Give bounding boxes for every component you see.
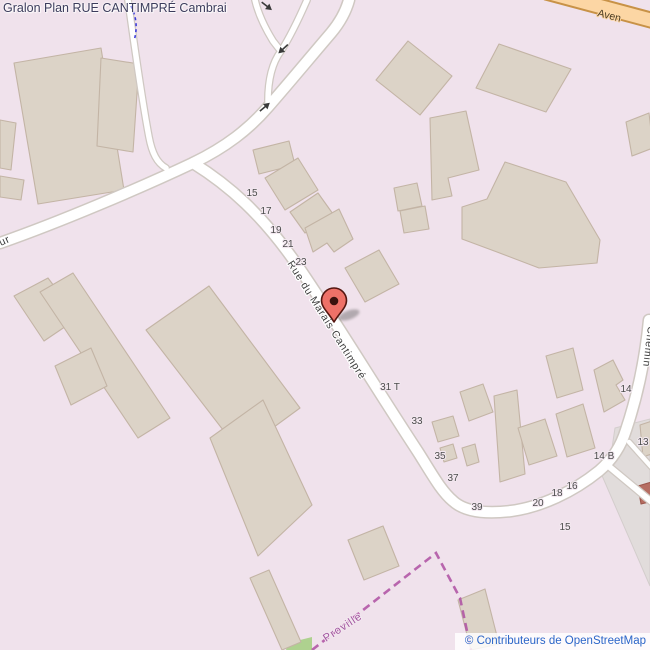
attribution-bar: © Contributeurs de OpenStreetMap xyxy=(455,633,650,650)
house-number: 17 xyxy=(260,206,272,217)
house-number: 13 xyxy=(637,437,649,448)
attribution-link[interactable]: © Contributeurs de OpenStreetMap xyxy=(465,635,646,647)
house-number: 20 xyxy=(532,498,544,509)
house-number: 15 xyxy=(559,522,571,533)
building xyxy=(394,183,422,211)
house-number: 15 xyxy=(246,188,258,199)
map-title: Gralon Plan RUE CANTIMPRÉ Cambrai xyxy=(3,1,227,15)
house-number: 33 xyxy=(411,416,423,427)
house-number: 16 xyxy=(566,481,578,492)
building xyxy=(97,58,139,152)
marker-pin-hole xyxy=(330,297,339,306)
house-number: 14 B xyxy=(594,451,615,462)
map-canvas[interactable]: Rue du Marais Cantimpré Chemin Aven ur P… xyxy=(0,0,650,650)
building xyxy=(400,206,429,233)
map-viewport[interactable]: Rue du Marais Cantimpré Chemin Aven ur P… xyxy=(0,0,650,650)
house-number: 31 T xyxy=(380,382,400,393)
house-number: 14 xyxy=(620,384,632,395)
house-number: 23 xyxy=(295,257,307,268)
house-number: 18 xyxy=(551,488,563,499)
house-number: 39 xyxy=(471,502,483,513)
house-number: 37 xyxy=(447,473,459,484)
house-number: 21 xyxy=(282,239,294,250)
house-number: 35 xyxy=(434,451,446,462)
building xyxy=(0,176,24,200)
house-number: 19 xyxy=(270,225,282,236)
